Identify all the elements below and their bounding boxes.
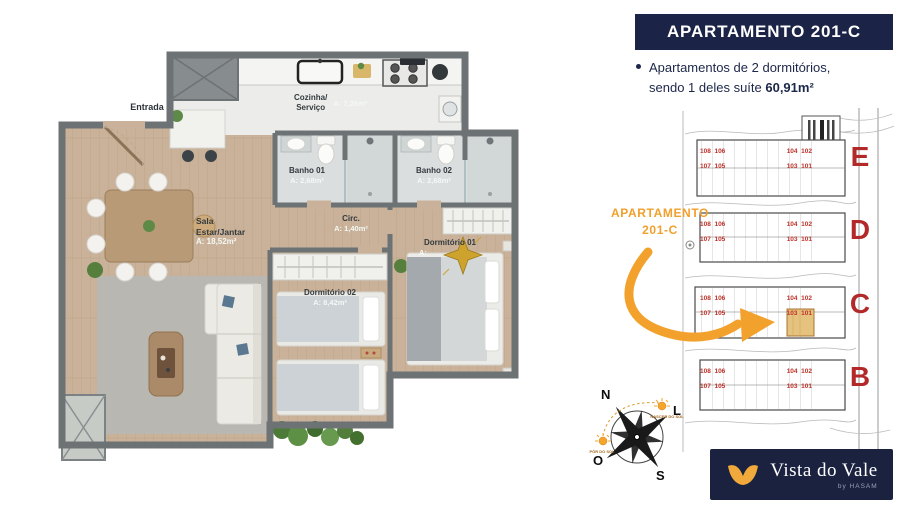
compass-s: S (656, 468, 665, 483)
room-label-circ: Circ. A: 1,40m² (325, 214, 377, 233)
block-label-D: D (843, 214, 877, 246)
room-label-dorm1: Dormitório 01 A: (413, 238, 487, 257)
block-label-B: B (843, 361, 877, 393)
compass-rose-icon (575, 380, 700, 505)
compass-n: N (601, 387, 610, 402)
description-bullet: Apartamentos de 2 dormitórios, sendo 1 d… (636, 58, 892, 97)
apartment-brochure-page: Entrada Cozinha/ Serviço A: 7,28m² Banho… (0, 0, 900, 506)
logo-byline: by HASAM (838, 483, 878, 490)
area-value: 60,91m² (765, 80, 813, 95)
room-label-dorm2: Dormitório 02 A: 8,42m² (283, 288, 377, 307)
sun-icon-sunrise (654, 398, 670, 410)
apartment-callout: APARTAMENTO 201-C (585, 205, 735, 239)
compass-o: O (593, 453, 603, 468)
brand-logo: Vista do Vale by HASAM (710, 449, 893, 500)
block-label-E: E (843, 141, 877, 173)
bullet-dot (636, 64, 641, 69)
block-label-C: C (843, 288, 877, 320)
sunrise-label: NASCER DO SOL (645, 414, 689, 419)
units-row-E-top: 108 106104 102 (700, 148, 812, 155)
entrada-label: Entrada (112, 102, 182, 113)
room-label-banho1: Banho 01 A: 2,68m² (276, 166, 338, 185)
room-label-banho2: Banho 02 A: 2,68m² (403, 166, 465, 185)
units-row-E-bottom: 107 105103 101 (700, 163, 812, 170)
page-title: APARTAMENTO 201-C (635, 14, 893, 50)
logo-name: Vista do Vale (770, 460, 877, 482)
room-label-cozinha: Cozinha/ Serviço A: 7,28m² (294, 93, 367, 113)
units-row-B-top: 108 106104 102 (700, 368, 812, 375)
sunset-label: PÔR DO SOL (580, 449, 624, 454)
sun-icon-sunset (595, 433, 611, 445)
room-label-sala: Sala Estar/Jantar A: 18,52m² (196, 216, 245, 247)
bird-logo-icon (725, 462, 761, 488)
units-row-B-bottom: 107 105103 101 (700, 383, 812, 390)
arrow-icon (580, 240, 820, 360)
